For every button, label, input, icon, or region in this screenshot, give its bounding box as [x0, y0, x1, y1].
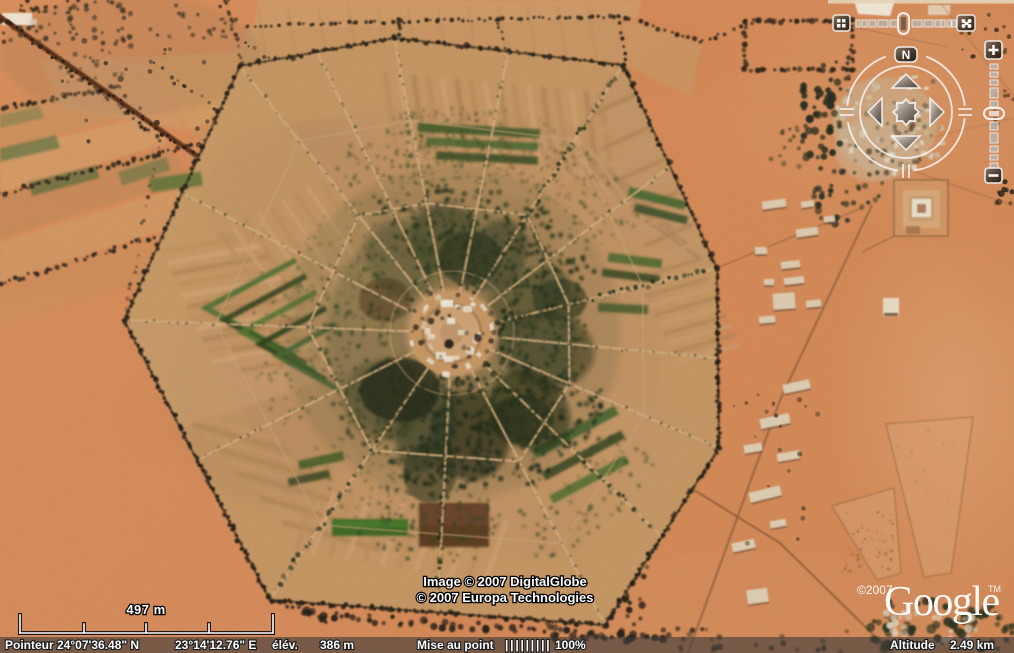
- svg-text:Mise au point: Mise au point: [417, 638, 494, 652]
- svg-text:Altitude: Altitude: [890, 638, 935, 652]
- svg-text:élév.: élév.: [272, 638, 298, 652]
- svg-text:497 m: 497 m: [126, 602, 165, 617]
- svg-text:Image © 2007 DigitalGlobe: Image © 2007 DigitalGlobe: [423, 574, 586, 589]
- svg-text:© 2007 Europa Technologies: © 2007 Europa Technologies: [417, 590, 594, 605]
- svg-text:Pointeur 24°07'36.48" N: Pointeur 24°07'36.48" N: [5, 638, 139, 652]
- svg-text:Google: Google: [884, 579, 1000, 625]
- svg-text:2.49 km: 2.49 km: [950, 638, 994, 652]
- svg-text:TM: TM: [988, 584, 1001, 594]
- svg-text:23°14'12.76" E: 23°14'12.76" E: [175, 638, 256, 652]
- svg-text:|||||||||: |||||||||: [505, 638, 551, 652]
- svg-text:386 m: 386 m: [320, 638, 354, 652]
- svg-text:100%: 100%: [555, 638, 586, 652]
- svg-text:N: N: [902, 48, 911, 62]
